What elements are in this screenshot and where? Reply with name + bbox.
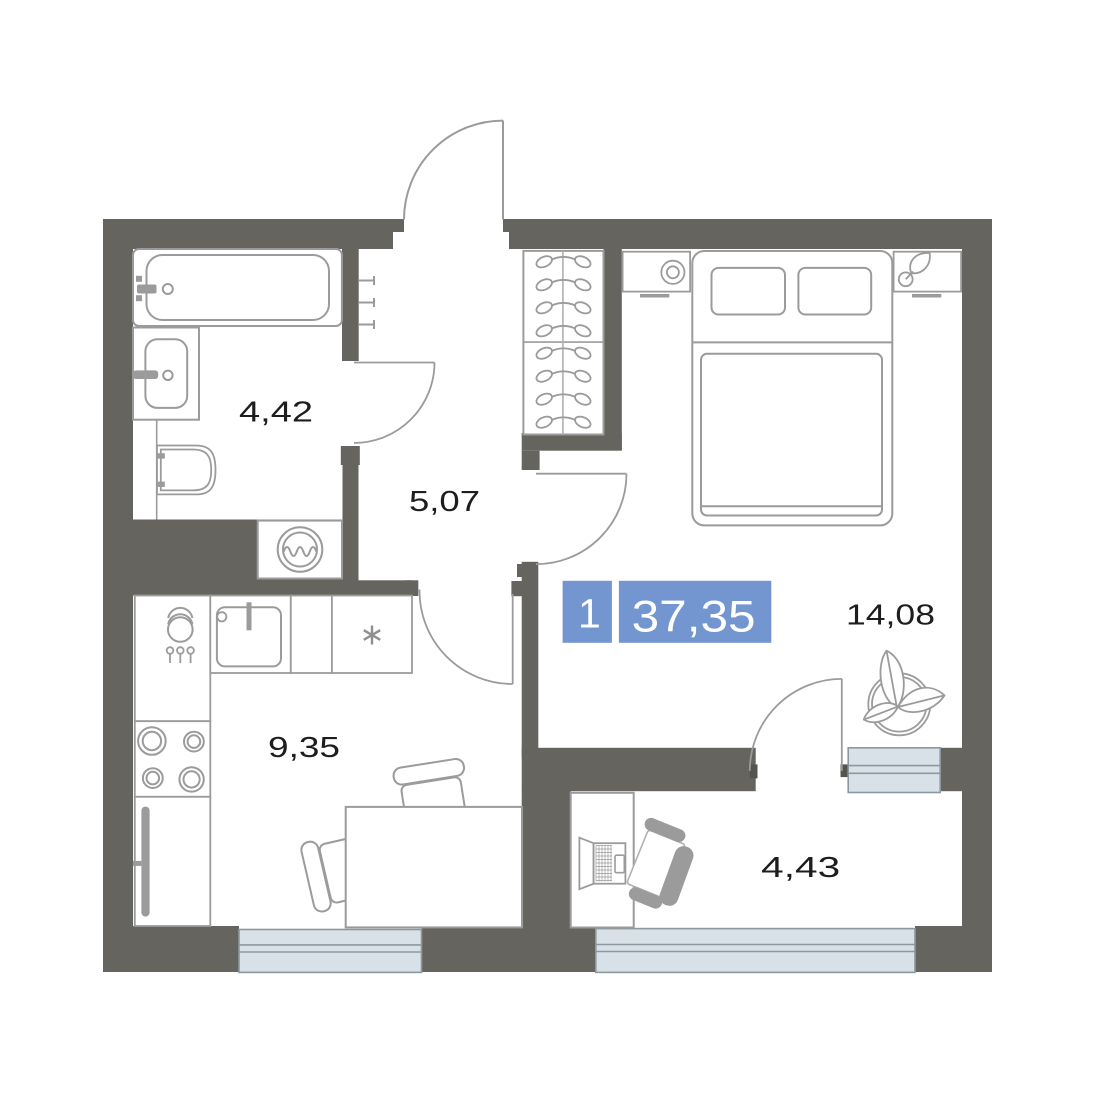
svg-text:9,35: 9,35 [268, 732, 340, 764]
svg-text:1: 1 [578, 590, 601, 636]
svg-text:4,42: 4,42 [239, 397, 313, 429]
svg-text:5,07: 5,07 [409, 486, 480, 518]
svg-text:4,43: 4,43 [761, 852, 840, 884]
svg-text:14,08: 14,08 [846, 600, 935, 632]
svg-text:37,35: 37,35 [632, 593, 756, 642]
